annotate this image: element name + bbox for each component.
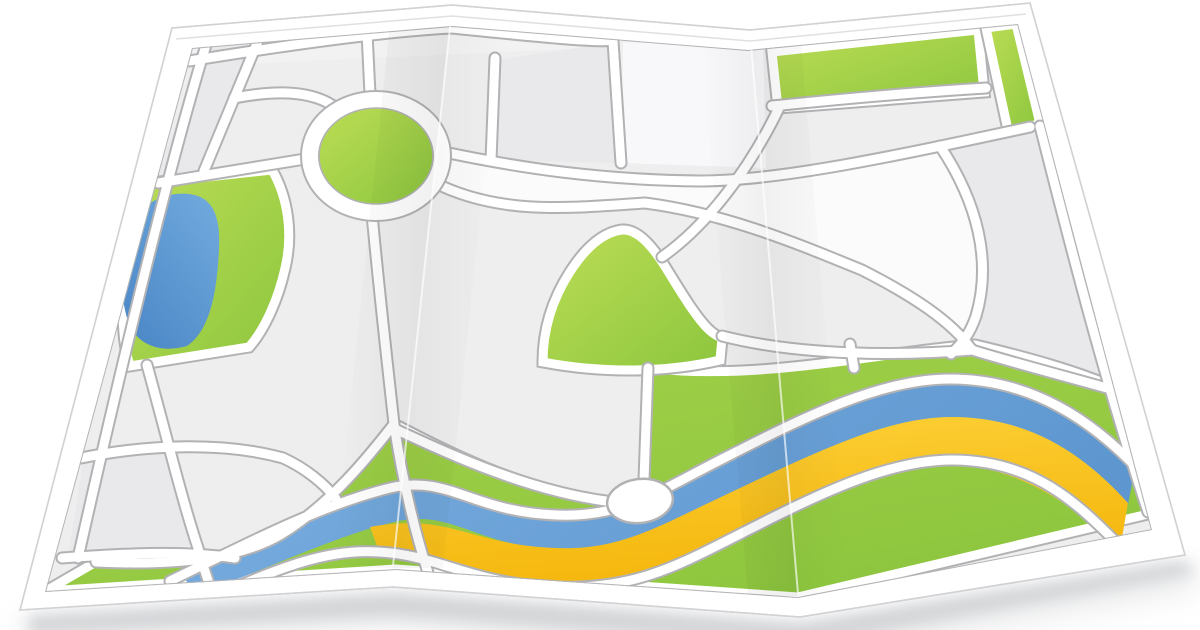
folded-map-illustration xyxy=(0,0,1200,630)
illustration-canvas xyxy=(0,0,1200,630)
map-content xyxy=(45,5,1152,602)
parcel-topcenter-gray xyxy=(493,42,621,163)
